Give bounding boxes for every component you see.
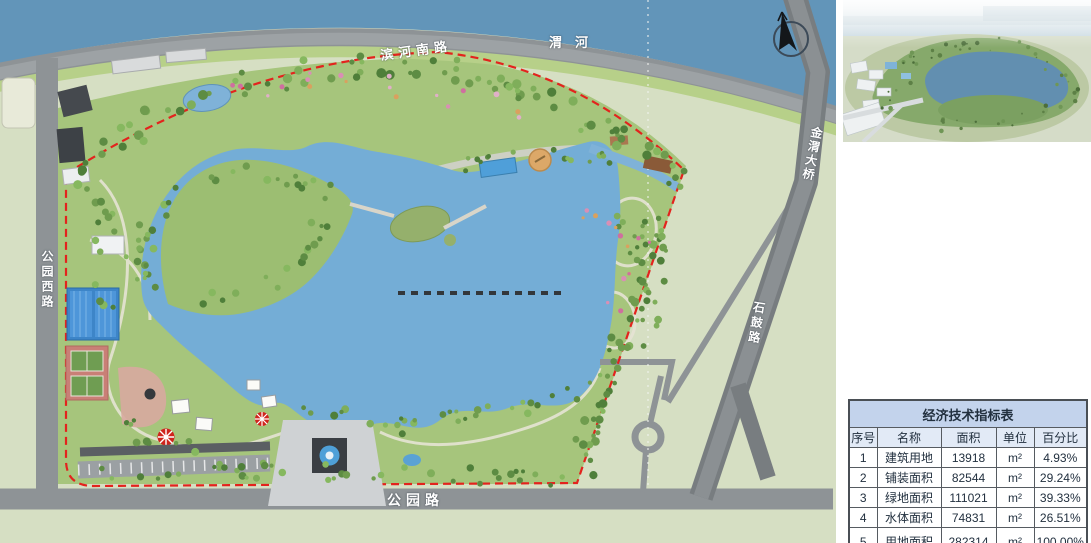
table-cell: m² — [996, 488, 1034, 508]
lake-islet — [444, 234, 456, 246]
table-row: 5用地面积282314m²100.00% — [849, 528, 1087, 543]
table-cell: 4 — [849, 508, 877, 528]
table-cell: m² — [996, 508, 1034, 528]
table-cell: 3 — [849, 488, 877, 508]
table-row: 4水体面积74831m²26.51% — [849, 508, 1087, 528]
sports-hall — [67, 288, 119, 340]
table-cell: 26.51% — [1034, 508, 1087, 528]
table-cell: 82544 — [941, 468, 996, 488]
table-header-cell: 名称 — [877, 428, 941, 448]
table-cell: 13918 — [941, 448, 996, 468]
table-row: 1建筑用地13918m²4.93% — [849, 448, 1087, 468]
table-row: 3绿地面积111021m²39.33% — [849, 488, 1087, 508]
table-cell: 4.93% — [1034, 448, 1087, 468]
table-cell: 铺装面积 — [877, 468, 941, 488]
table-cell: 1 — [849, 448, 877, 468]
table-cell: 111021 — [941, 488, 996, 508]
table-header-cell: 单位 — [996, 428, 1034, 448]
table-cell: 水体面积 — [877, 508, 941, 528]
aerial-rendering-image — [843, 0, 1091, 142]
sand-plaza — [529, 149, 551, 171]
table-cell: 2 — [849, 468, 877, 488]
table-cell: m² — [996, 468, 1034, 488]
table-row: 2铺装面积82544m²29.24% — [849, 468, 1087, 488]
masterplan-page: { "map": { "labels": { "riverside_road":… — [0, 0, 1091, 543]
economic-indicators-table: 经济技术指标表序号名称面积单位百分比1建筑用地13918m²4.93%2铺装面积… — [848, 399, 1086, 543]
table-header-cell: 序号 — [849, 428, 877, 448]
table-header-cell: 百分比 — [1034, 428, 1087, 448]
tennis-courts — [66, 346, 108, 400]
table-cell: 绿地面积 — [877, 488, 941, 508]
table-cell: m² — [996, 528, 1034, 543]
table-cell: 5 — [849, 528, 877, 543]
table-header-cell: 面积 — [941, 428, 996, 448]
table-cell: 建筑用地 — [877, 448, 941, 468]
table-cell: 39.33% — [1034, 488, 1087, 508]
table-cell: 100.00% — [1034, 528, 1087, 543]
table-title: 经济技术指标表 — [849, 400, 1087, 428]
table-cell: 282314 — [941, 528, 996, 543]
table-cell: 74831 — [941, 508, 996, 528]
table-cell: 29.24% — [1034, 468, 1087, 488]
park-masterplan-map — [0, 0, 836, 543]
table-cell: 用地面积 — [877, 528, 941, 543]
table-cell: m² — [996, 448, 1034, 468]
